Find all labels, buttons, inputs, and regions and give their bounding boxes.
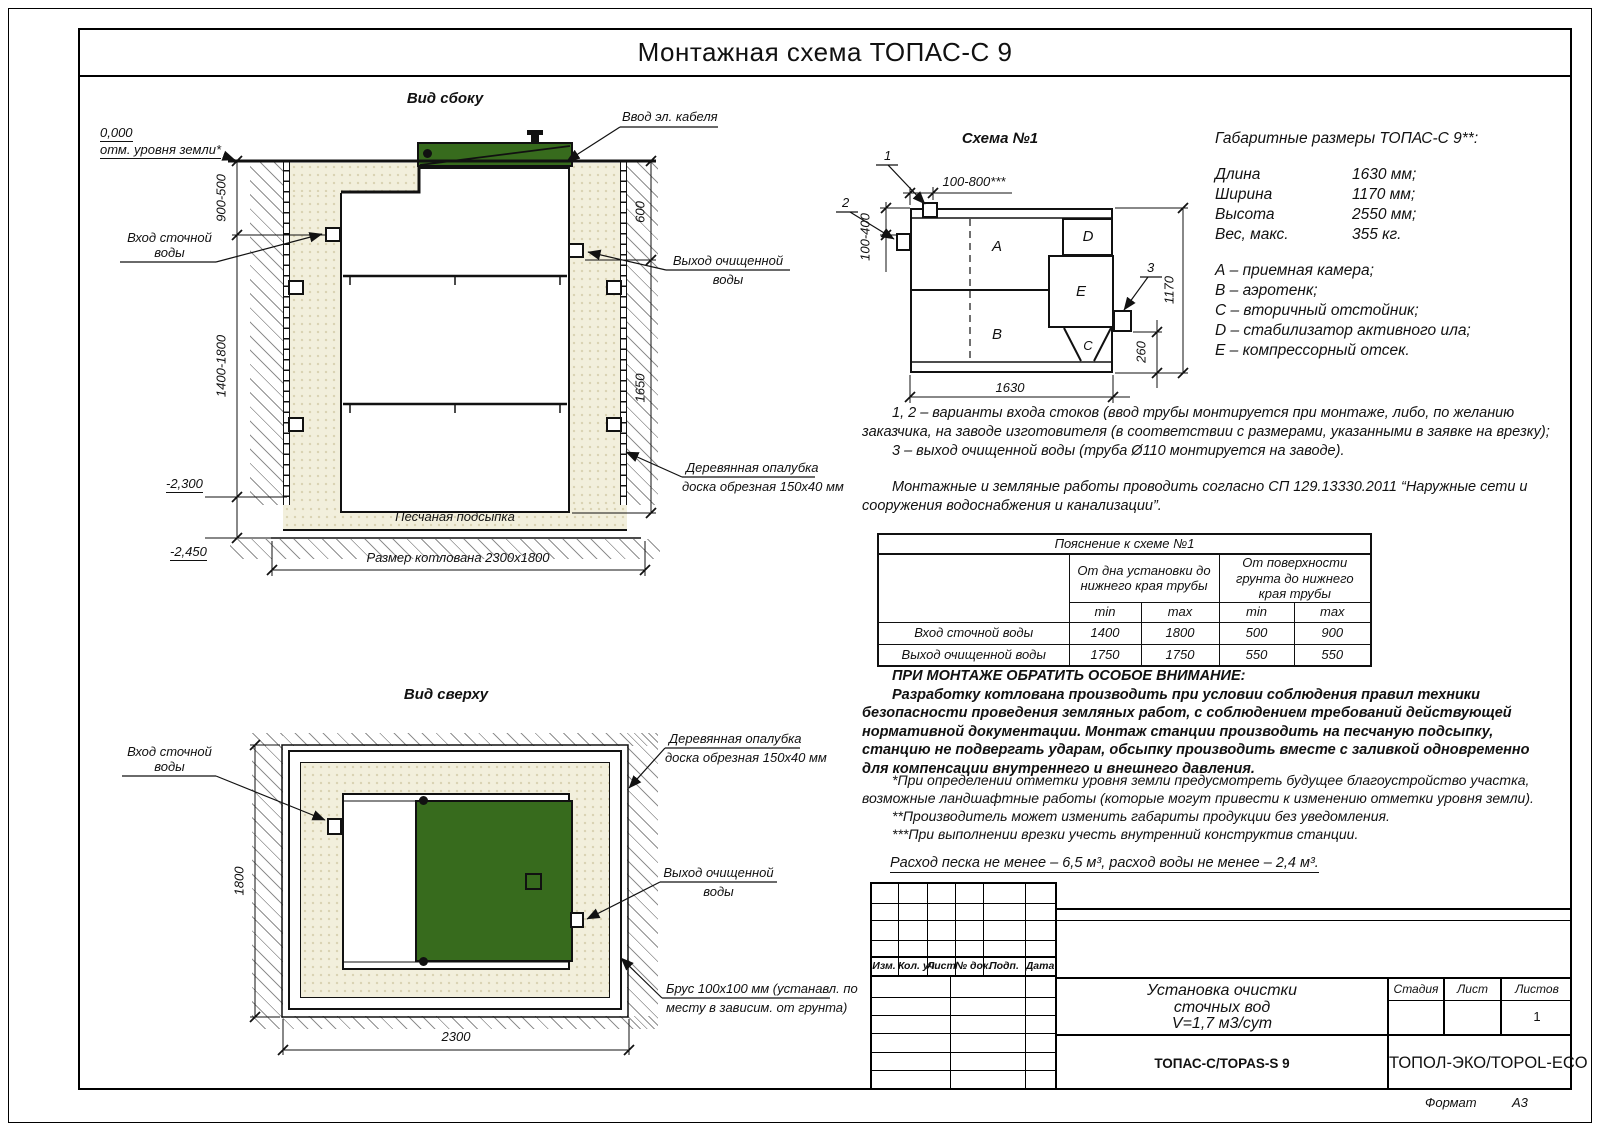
elevation-2450-label: -2,450 bbox=[170, 544, 207, 561]
side-inlet-label: воды bbox=[122, 246, 217, 261]
explanation-table: Пояснение к схеме №1 От дна установки до… bbox=[877, 533, 1372, 667]
elevation-zero-label: 0,000 bbox=[100, 125, 133, 142]
dim-900-500: 900-500 bbox=[215, 174, 230, 222]
titleblock-line bbox=[870, 997, 1055, 998]
top-outlet-label: воды bbox=[660, 885, 777, 900]
schema-compartment-b: B bbox=[988, 326, 1006, 343]
titleblock-col-ndok: № док. bbox=[955, 960, 983, 972]
cable-entry-label: Ввод эл. кабеля bbox=[622, 110, 718, 125]
table-row: Вход сточной воды 1400 1800 500 900 bbox=[878, 622, 1371, 644]
spec-value: 355 кг. bbox=[1352, 226, 1401, 244]
spec-value: 1630 мм; bbox=[1352, 166, 1416, 184]
side-formwork-label: доска обрезная 150х40 мм bbox=[682, 480, 844, 495]
table-group-header: От поверхности грунта до нижнего края тр… bbox=[1219, 554, 1371, 602]
dim-1800: 1800 bbox=[233, 867, 248, 896]
schema-callout-2: 2 bbox=[842, 196, 849, 211]
schema-compartment-e: E bbox=[1072, 283, 1090, 300]
titleblock-line bbox=[1055, 882, 1057, 1090]
ground-level-label: отм. уровня земли* bbox=[100, 142, 221, 159]
schema-compartment-a: A bbox=[988, 238, 1006, 255]
elevation-2300-label: -2,300 bbox=[166, 476, 203, 493]
format-value: А3 bbox=[1512, 1096, 1528, 1111]
titleblock-line bbox=[870, 1070, 1055, 1071]
doc-title-line3: V=1,7 м3/сут bbox=[1060, 1015, 1384, 1033]
beam-label: месту в зависим. от грунта) bbox=[666, 1001, 847, 1016]
sand-bedding-label: Песчаная подсыпка bbox=[375, 510, 535, 525]
spec-label: Высота bbox=[1215, 206, 1274, 224]
dim-1630: 1630 bbox=[960, 381, 1060, 396]
spec-label: Ширина bbox=[1215, 186, 1272, 204]
dim-260: 260 bbox=[1135, 341, 1150, 363]
top-formwork-label: доска обрезная 150х40 мм bbox=[665, 751, 827, 766]
titleblock-line bbox=[870, 882, 872, 1090]
top-outlet-label: Выход очищенной bbox=[660, 866, 777, 881]
titleblock-col-data: Дата bbox=[1025, 960, 1055, 972]
attention-heading: ПРИ МОНТАЖЕ ОБРАТИТЬ ОСОБОЕ ВНИМАНИЕ: bbox=[862, 667, 1556, 686]
titleblock-col-podp: Подп. bbox=[983, 960, 1025, 972]
dim-1650: 1650 bbox=[634, 374, 649, 403]
titleblock-col-list: Лист bbox=[927, 960, 955, 972]
table-empty-cell bbox=[878, 554, 1069, 622]
specs-heading: Габаритные размеры ТОПАС-С 9**: bbox=[1215, 130, 1478, 148]
schema-title: Схема №1 bbox=[940, 130, 1060, 147]
dim-100-400: 100-400 bbox=[859, 213, 874, 261]
spec-value: 2550 мм; bbox=[1352, 206, 1416, 224]
side-outlet-label: Выход очищенной bbox=[666, 254, 790, 269]
pit-size-label: Размер котлована 2300х1800 bbox=[333, 551, 583, 566]
titleblock-line bbox=[1055, 908, 1572, 910]
side-inlet-label: Вход сточной bbox=[122, 231, 217, 246]
sheets-header: Листов bbox=[1502, 983, 1572, 997]
attention-body: Разработку котлована производить при усл… bbox=[862, 686, 1556, 778]
sheets-value: 1 bbox=[1502, 1010, 1572, 1025]
table-minmax-header: max bbox=[1294, 602, 1371, 622]
titleblock-line bbox=[870, 975, 1055, 977]
titleblock-line bbox=[1055, 920, 1572, 921]
spec-value: 1170 мм; bbox=[1352, 186, 1415, 204]
titleblock-line bbox=[1025, 975, 1026, 1090]
spec-label: Вес, макс. bbox=[1215, 226, 1289, 244]
schema-callout-1: 1 bbox=[884, 149, 891, 164]
footnote-1: *При определении отметки уровня земли пр… bbox=[862, 771, 1556, 807]
table-minmax-header: min bbox=[1219, 602, 1294, 622]
legend-item: А – приемная камера; bbox=[1215, 262, 1374, 280]
table-row: Выход очищенной воды 1750 1750 550 550 bbox=[878, 644, 1371, 666]
legend-item: С – вторичный отстойник; bbox=[1215, 302, 1419, 320]
titleblock-line bbox=[1387, 1000, 1572, 1001]
titleblock-col-izm: Изм. bbox=[870, 960, 898, 972]
legend-item: В – аэротенк; bbox=[1215, 282, 1318, 300]
consumption-note: Расход песка не менее – 6,5 м³, расход в… bbox=[890, 855, 1319, 873]
sheet-header: Лист bbox=[1445, 983, 1500, 997]
note-sp-standard: Монтажные и земляные работы проводить со… bbox=[862, 478, 1556, 516]
dim-1170: 1170 bbox=[1163, 276, 1178, 304]
dim-100-800: 100-800*** bbox=[924, 175, 1024, 190]
titleblock-line bbox=[950, 975, 951, 1090]
schema-callout-3: 3 bbox=[1147, 261, 1154, 276]
side-outlet-label: воды bbox=[666, 273, 790, 288]
model-designation: ТОПАС-С/TOPAS-S 9 bbox=[1060, 1056, 1384, 1072]
titleblock-col-koluch: Кол. уч. bbox=[898, 960, 927, 972]
table-minmax-header: max bbox=[1141, 602, 1219, 622]
schema-compartment-d: D bbox=[1079, 228, 1097, 245]
top-view-title: Вид сверху bbox=[386, 686, 506, 703]
dim-600: 600 bbox=[634, 201, 649, 223]
top-formwork-label: Деревянная опалубка bbox=[669, 732, 802, 747]
table-title: Пояснение к схеме №1 bbox=[878, 534, 1371, 554]
titleblock-line bbox=[870, 1052, 1055, 1053]
legend-item: D – стабилизатор активного ила; bbox=[1215, 322, 1471, 340]
note-inlet-variants: 1, 2 – варианты входа стоков (ввод трубы… bbox=[862, 404, 1556, 442]
dim-1400-1800: 1400-1800 bbox=[215, 335, 230, 397]
side-formwork-label: Деревянная опалубка bbox=[686, 461, 819, 476]
legend-item: Е – компрессорный отсек. bbox=[1215, 342, 1410, 360]
side-view-title: Вид сбоку bbox=[385, 90, 505, 107]
footnote-3: ***При выполнении врезки учесть внутренн… bbox=[862, 825, 1556, 843]
schema-compartment-c: C bbox=[1079, 339, 1097, 354]
beam-label: Брус 100х100 мм (устанавл. по bbox=[666, 982, 858, 997]
company-name: ТОПОЛ-ЭКО/TOPOL-ECO bbox=[1389, 1054, 1572, 1073]
footnote-2: **Производитель может изменить габариты … bbox=[862, 807, 1556, 825]
spec-label: Длина bbox=[1215, 166, 1260, 184]
dim-2300: 2300 bbox=[406, 1030, 506, 1045]
stage-header: Стадия bbox=[1389, 983, 1443, 997]
titleblock-line bbox=[1055, 1034, 1572, 1036]
top-inlet-label: Вход сточной bbox=[122, 745, 217, 760]
titleblock-line bbox=[1055, 977, 1572, 979]
titleblock-line bbox=[870, 1033, 1055, 1034]
drawing-sheet: Монтажная схема ТОПАС-С 9 bbox=[0, 0, 1600, 1131]
top-inlet-label: воды bbox=[122, 760, 217, 775]
format-label: Формат bbox=[1425, 1096, 1477, 1111]
table-minmax-header: min bbox=[1069, 602, 1141, 622]
doc-title-line1: Установка очистки bbox=[1060, 982, 1384, 1000]
titleblock-line bbox=[870, 1015, 1055, 1016]
table-group-header: От дна установки до нижнего края трубы bbox=[1069, 554, 1219, 602]
note-outlet: 3 – выход очищенной воды (труба Ø110 мон… bbox=[862, 442, 1556, 461]
